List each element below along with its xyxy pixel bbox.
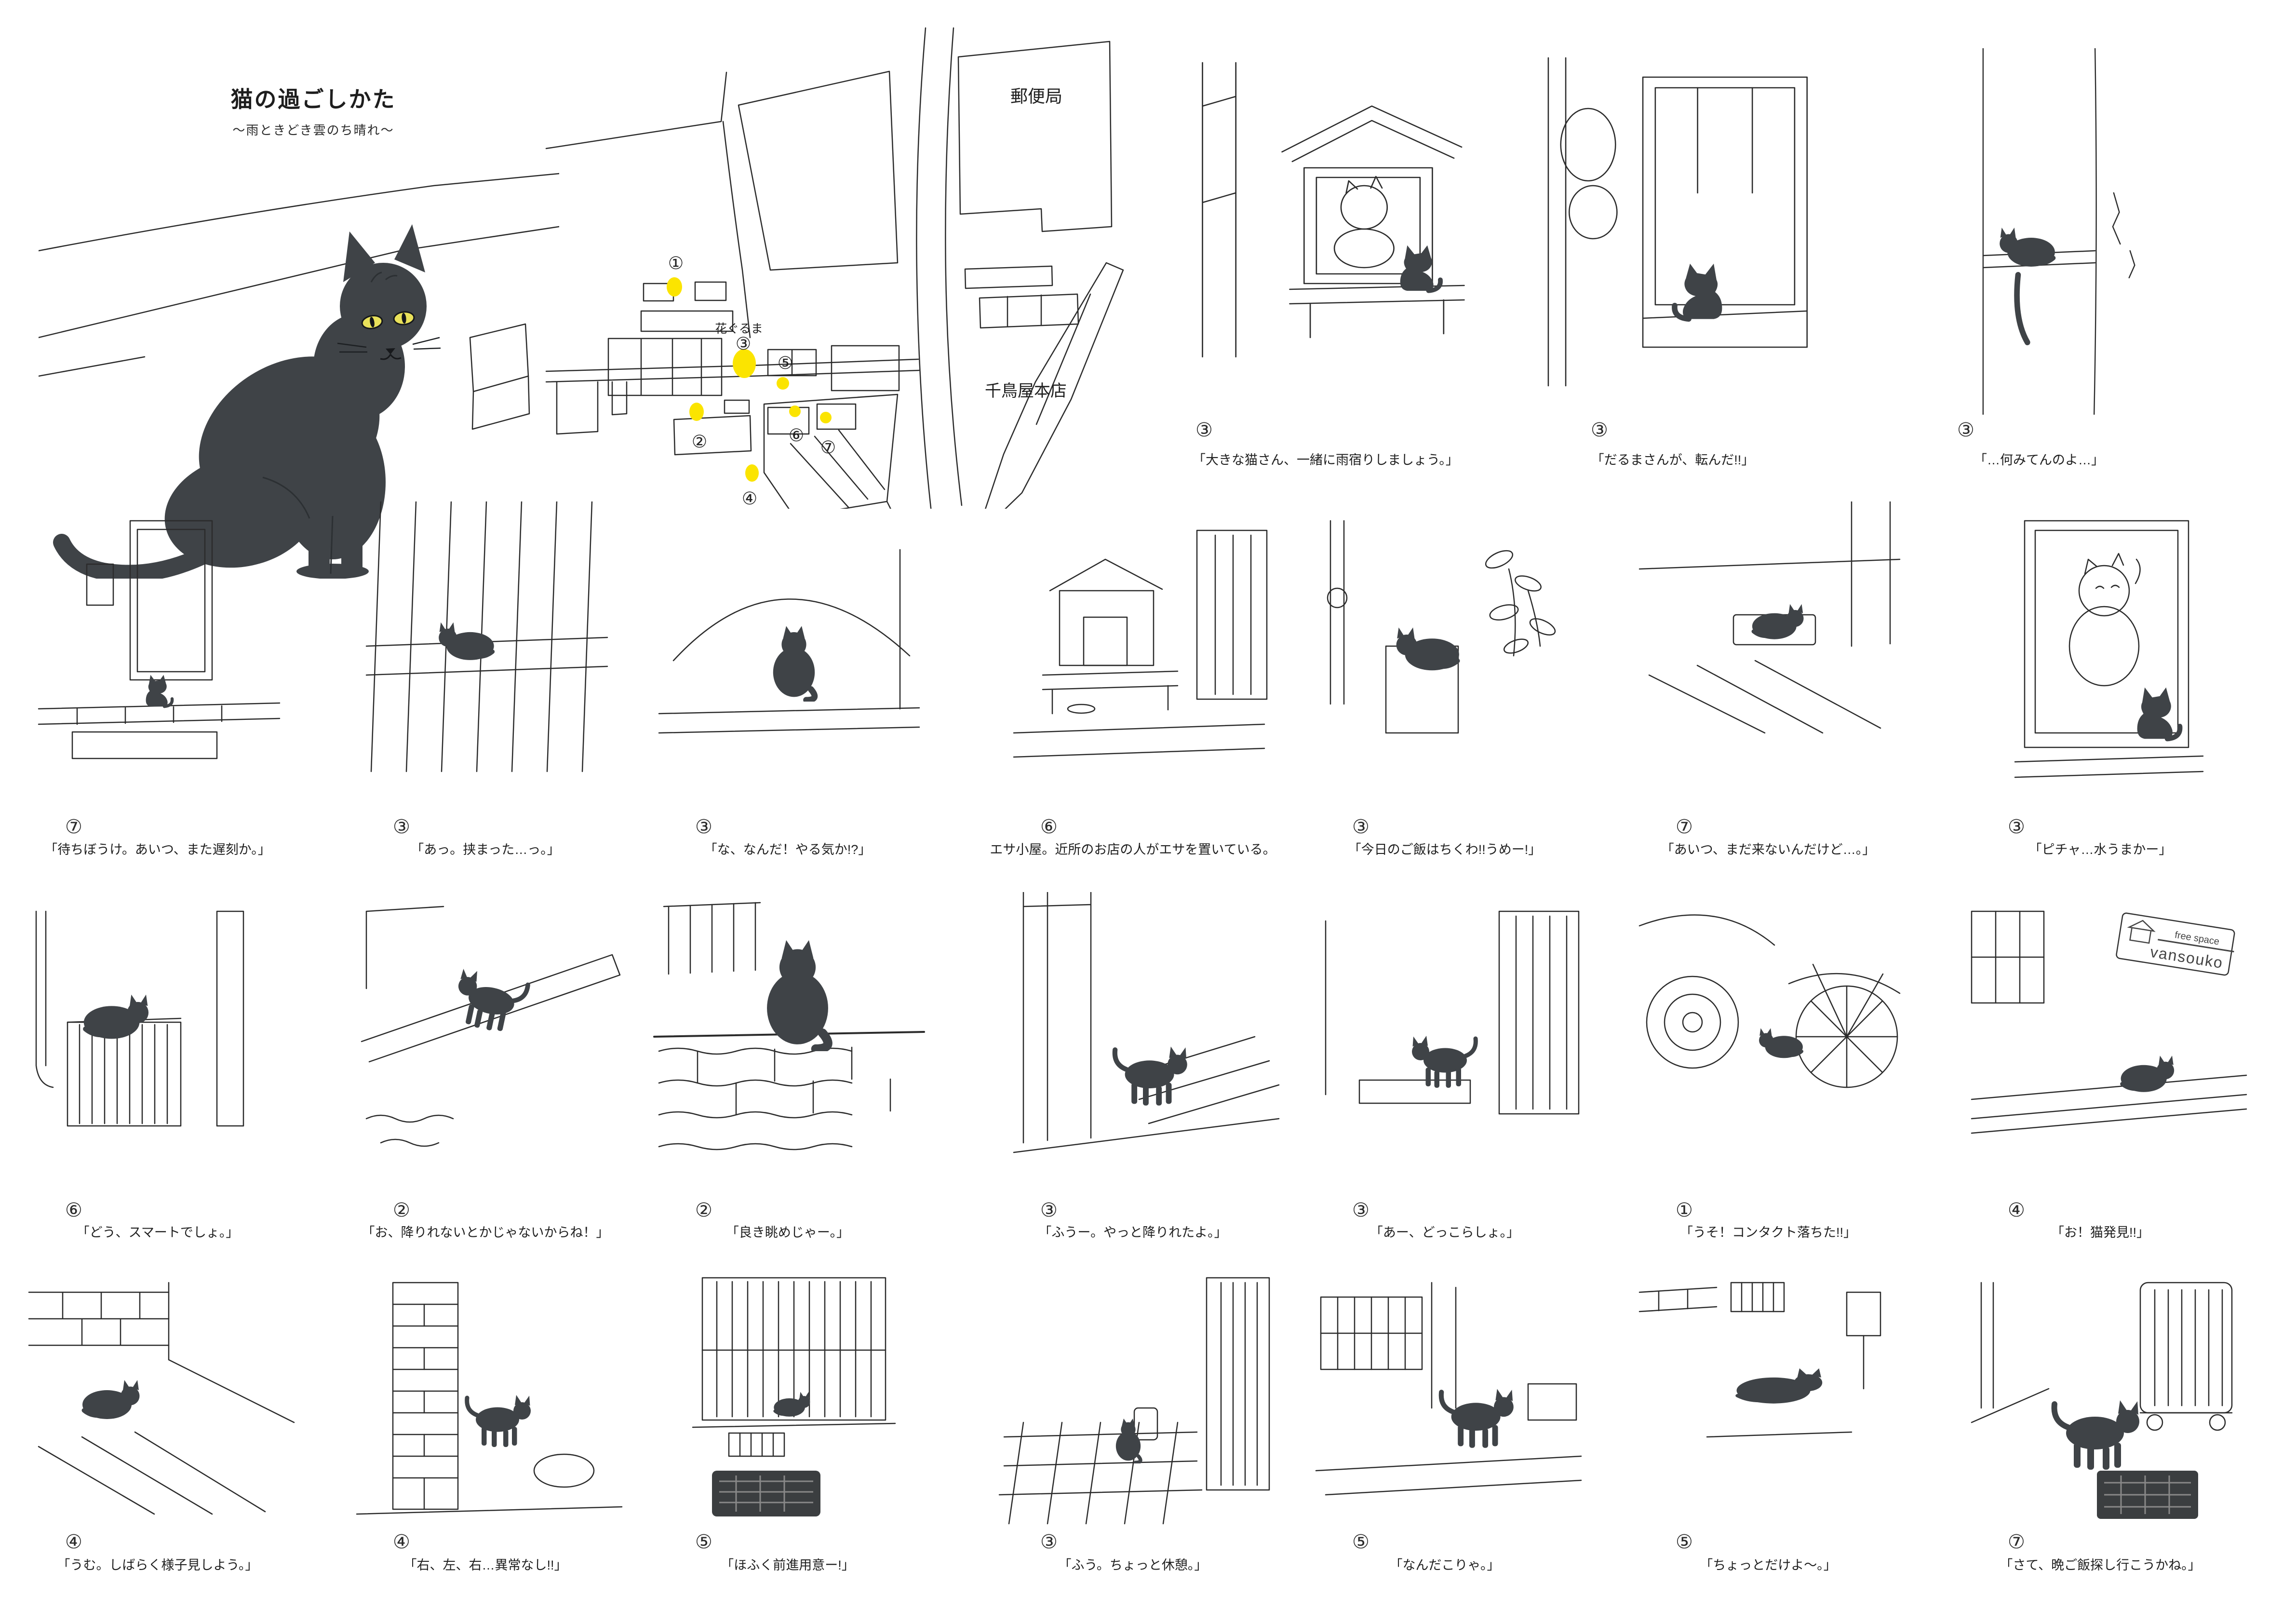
panel-caption: 「大きな猫さん、一緒に雨宿りしましょう。」 bbox=[1167, 449, 1485, 468]
panel-caption: 「待ちぼうけ。あいつ、また遅刻か。」 bbox=[10, 839, 306, 858]
panel-caption: 「あいつ、まだ来ないんだけど…。」 bbox=[1620, 839, 1916, 858]
neighborhood-map: 郵便局 千鳥屋本店 花ぐるま ① ② ③ ④ ⑤ ⑥ ⑦ bbox=[540, 27, 1152, 509]
panel-illustration bbox=[1297, 1263, 1593, 1529]
panel-illustration bbox=[640, 1263, 936, 1529]
vansouko-sign: free space vansouko bbox=[2116, 913, 2237, 976]
panel-r2-1: ⑦ 「待ちぼうけ。あいつ、また遅刻か。」 bbox=[10, 501, 306, 810]
map-marker-num-1: ① bbox=[668, 253, 684, 273]
cat-silhouette bbox=[774, 1392, 810, 1417]
map-marker-dot-1 bbox=[667, 277, 682, 297]
map-marker-dot-5 bbox=[777, 377, 789, 390]
map-label-chidoriya: 千鳥屋本店 bbox=[985, 382, 1067, 400]
page-subtitle: 〜雨ときどき雲のち晴れ〜 bbox=[190, 121, 436, 138]
panel-illustration bbox=[985, 1263, 1281, 1529]
cat-silhouette bbox=[2137, 688, 2180, 739]
panel-caption: 「さて、晩ご飯探し行こうかね。」 bbox=[1952, 1555, 2248, 1573]
panel-caption: 「どう、スマートでしょ。」 bbox=[10, 1222, 306, 1241]
panel-number: ④ bbox=[2008, 1201, 2025, 1220]
panel-number: ③ bbox=[1040, 1532, 1058, 1552]
panel-r3-5: ③ 「あー、どっこらしょ。」 bbox=[1297, 892, 1593, 1196]
panel-caption: エサ小屋。近所のお店の人がエサを置いている。 bbox=[985, 839, 1281, 858]
cat-silhouette bbox=[2054, 1400, 2139, 1470]
panel-illustration bbox=[1518, 48, 1827, 415]
panel-illustration: free space vansouko bbox=[1952, 892, 2248, 1196]
panel-illustration bbox=[640, 501, 936, 810]
panel-number: ③ bbox=[393, 817, 410, 837]
panel-caption: 「あー、どっこらしょ。」 bbox=[1297, 1222, 1593, 1241]
panel-r1-1: ③ 「大きな猫さん、一緒に雨宿りしましょう。」 bbox=[1167, 48, 1485, 415]
cat-silhouette bbox=[773, 626, 815, 700]
panel-r3-6: ① 「うそ！コンタクト落ちた!!」 bbox=[1620, 892, 1916, 1196]
panel-r4-3: ⑤ 「ほふく前進用意ー!」 bbox=[640, 1263, 936, 1529]
panel-number: ③ bbox=[1591, 420, 1608, 440]
panel-caption: 「あっ。挟まった…っ。」 bbox=[337, 839, 633, 858]
panel-r3-2: ② 「お、降りれないとかじゃないからね！」 bbox=[337, 892, 633, 1196]
panel-number: ② bbox=[393, 1201, 410, 1220]
panel-r2-4: ⑥ エサ小屋。近所のお店の人がエサを置いている。 bbox=[985, 501, 1281, 810]
panel-r2-2: ③ 「あっ。挟まった…っ。」 bbox=[337, 501, 633, 810]
panel-number: ⑥ bbox=[65, 1201, 82, 1220]
panel-caption: 「うむ。しばらく様子見しよう。」 bbox=[10, 1555, 306, 1573]
cat-silhouette bbox=[1737, 1368, 1823, 1404]
map-marker-dot-4 bbox=[745, 464, 759, 482]
cat-silhouette bbox=[451, 968, 529, 1036]
cat-silhouette bbox=[1115, 1046, 1187, 1105]
panel-r4-2: ④ 「右、左、右…異常なし!!」 bbox=[337, 1263, 633, 1529]
panel-caption: 「ふうー。やっと降りれたよ。」 bbox=[985, 1222, 1281, 1241]
cat-silhouette bbox=[1441, 1389, 1514, 1448]
panel-number: ③ bbox=[1195, 420, 1213, 440]
panel-r3-4: ③ 「ふうー。やっと降りれたよ。」 bbox=[985, 892, 1281, 1196]
panel-illustration bbox=[1620, 1263, 1916, 1529]
panel-r3-3: ② 「良き眺めじゃー。」 bbox=[640, 892, 936, 1196]
panel-r1-3: ③ 「…何みてんのよ…」 bbox=[1894, 48, 2184, 415]
cat-silhouette bbox=[84, 995, 148, 1039]
woven-mat bbox=[712, 1471, 820, 1516]
panel-caption: 「ふう。ちょっと休憩。」 bbox=[985, 1555, 1281, 1573]
panel-number: ③ bbox=[1957, 420, 1974, 440]
panel-number: ③ bbox=[695, 817, 712, 837]
cat-silhouette bbox=[2121, 1056, 2175, 1092]
panel-caption: 「ちょっとだけよ〜。」 bbox=[1620, 1555, 1916, 1573]
panel-illustration bbox=[640, 892, 936, 1196]
panel-illustration bbox=[1620, 501, 1916, 810]
page-title: 猫の過ごしかた bbox=[190, 82, 436, 114]
panel-number: ⑥ bbox=[1040, 817, 1058, 837]
panel-illustration bbox=[337, 1263, 633, 1529]
panel-illustration bbox=[10, 1263, 306, 1529]
panel-caption: 「うそ！コンタクト落ちた!!」 bbox=[1620, 1222, 1916, 1241]
panel-r4-5: ⑤ 「なんだこりゃ。」 bbox=[1297, 1263, 1593, 1529]
map-marker-dot-7 bbox=[820, 412, 832, 423]
panel-number: ④ bbox=[65, 1532, 82, 1552]
panel-r4-1: ④ 「うむ。しばらく様子見しよう。」 bbox=[10, 1263, 306, 1529]
panel-r4-4: ③ 「ふう。ちょっと休憩。」 bbox=[985, 1263, 1281, 1529]
panel-caption: 「なんだこりゃ。」 bbox=[1297, 1555, 1593, 1573]
panel-illustration bbox=[1297, 501, 1593, 810]
map-label-post-office: 郵便局 bbox=[1010, 86, 1062, 106]
cat-silhouette bbox=[767, 940, 828, 1049]
map-markers: ① ② ③ ④ ⑤ ⑥ ⑦ bbox=[667, 253, 836, 508]
panel-caption: 「ほふく前進用意ー!」 bbox=[640, 1555, 936, 1573]
panel-caption: 「…何みてんのよ…」 bbox=[1894, 449, 2184, 468]
cat-silhouette bbox=[82, 1380, 140, 1419]
panel-number: ⑤ bbox=[1352, 1532, 1370, 1552]
panel-illustration bbox=[10, 501, 306, 810]
panel-number: ④ bbox=[393, 1532, 410, 1552]
map-marker-num-6: ⑥ bbox=[789, 425, 804, 445]
panel-r4-7: ⑦ 「さて、晩ご飯探し行こうかね。」 bbox=[1952, 1263, 2248, 1529]
map-marker-num-3: ③ bbox=[736, 334, 751, 353]
panel-number: ① bbox=[1676, 1201, 1693, 1220]
cat-silhouette bbox=[1675, 264, 1722, 319]
panel-r4-6: ⑤ 「ちょっとだけよ〜。」 bbox=[1620, 1263, 1916, 1529]
panel-illustration bbox=[985, 501, 1281, 810]
panel-illustration bbox=[1297, 892, 1593, 1196]
panel-r3-7: free space vansouko ④ 「お！猫発見!!」 bbox=[1952, 892, 2248, 1196]
title-block: 猫の過ごしかた 〜雨ときどき雲のち晴れ〜 bbox=[190, 82, 436, 138]
panel-r2-3: ③ 「な、なんだ！やる気か!?」 bbox=[640, 501, 936, 810]
panel-r3-1: ⑥ 「どう、スマートでしょ。」 bbox=[10, 892, 306, 1196]
panel-illustration bbox=[985, 892, 1281, 1196]
panel-number: ⑤ bbox=[1676, 1532, 1693, 1552]
panel-caption: 「だるまさんが、転んだ!!」 bbox=[1518, 449, 1827, 468]
panel-number: ② bbox=[695, 1201, 712, 1220]
panel-number: ③ bbox=[1352, 1201, 1370, 1220]
cat-silhouette bbox=[2000, 228, 2055, 342]
panel-r2-6: ⑦ 「あいつ、まだ来ないんだけど…。」 bbox=[1620, 501, 1916, 810]
panel-illustration bbox=[1952, 501, 2248, 810]
map-marker-num-5: ⑤ bbox=[778, 353, 793, 373]
cat-silhouette bbox=[1116, 1419, 1141, 1462]
map-marker-dot-3 bbox=[733, 349, 756, 378]
panel-caption: 「お！猫発見!!」 bbox=[1952, 1222, 2248, 1241]
panel-illustration bbox=[1952, 1263, 2248, 1529]
panel-illustration bbox=[1894, 48, 2184, 415]
panel-illustration bbox=[337, 892, 633, 1196]
panel-caption: 「お、降りれないとかじゃないからね！」 bbox=[337, 1222, 633, 1241]
panel-caption: 「良き眺めじゃー。」 bbox=[640, 1222, 936, 1241]
panel-illustration bbox=[337, 501, 633, 810]
panel-illustration bbox=[10, 892, 306, 1196]
panel-number: ⑤ bbox=[695, 1532, 712, 1552]
panel-r2-5: ③ 「今日のご飯はちくわ!!うめー!」 bbox=[1297, 501, 1593, 810]
map-marker-num-7: ⑦ bbox=[820, 437, 836, 457]
map-marker-dot-2 bbox=[689, 403, 704, 421]
panel-illustration bbox=[1167, 48, 1485, 415]
page: 猫の過ごしかた 〜雨ときどき雲のち晴れ〜 bbox=[0, 0, 2296, 1624]
panel-caption: 「な、なんだ！やる気か!?」 bbox=[640, 839, 936, 858]
panel-number: ③ bbox=[1352, 817, 1370, 837]
cat-silhouette bbox=[1396, 627, 1459, 670]
panel-number: ③ bbox=[2008, 817, 2025, 837]
panel-number: ⑦ bbox=[2008, 1532, 2025, 1552]
panel-caption: 「ピチャ…水うまかー」 bbox=[1952, 839, 2248, 858]
cat-silhouette bbox=[467, 1395, 531, 1447]
panel-number: ⑦ bbox=[1676, 817, 1693, 837]
panel-caption: 「右、左、右…異常なし!!」 bbox=[337, 1555, 633, 1573]
panel-caption: 「今日のご飯はちくわ!!うめー!」 bbox=[1297, 839, 1593, 858]
panel-r1-2: ③ 「だるまさんが、転んだ!!」 bbox=[1518, 48, 1827, 415]
map-marker-num-2: ② bbox=[692, 432, 707, 451]
panel-number: ⑦ bbox=[65, 817, 82, 837]
map-marker-dot-6 bbox=[789, 406, 801, 417]
panel-illustration bbox=[1620, 892, 1916, 1196]
cat-silhouette bbox=[1752, 604, 1804, 639]
panel-r2-7: ③ 「ピチャ…水うまかー」 bbox=[1952, 501, 2248, 810]
panel-number: ③ bbox=[1040, 1201, 1058, 1220]
